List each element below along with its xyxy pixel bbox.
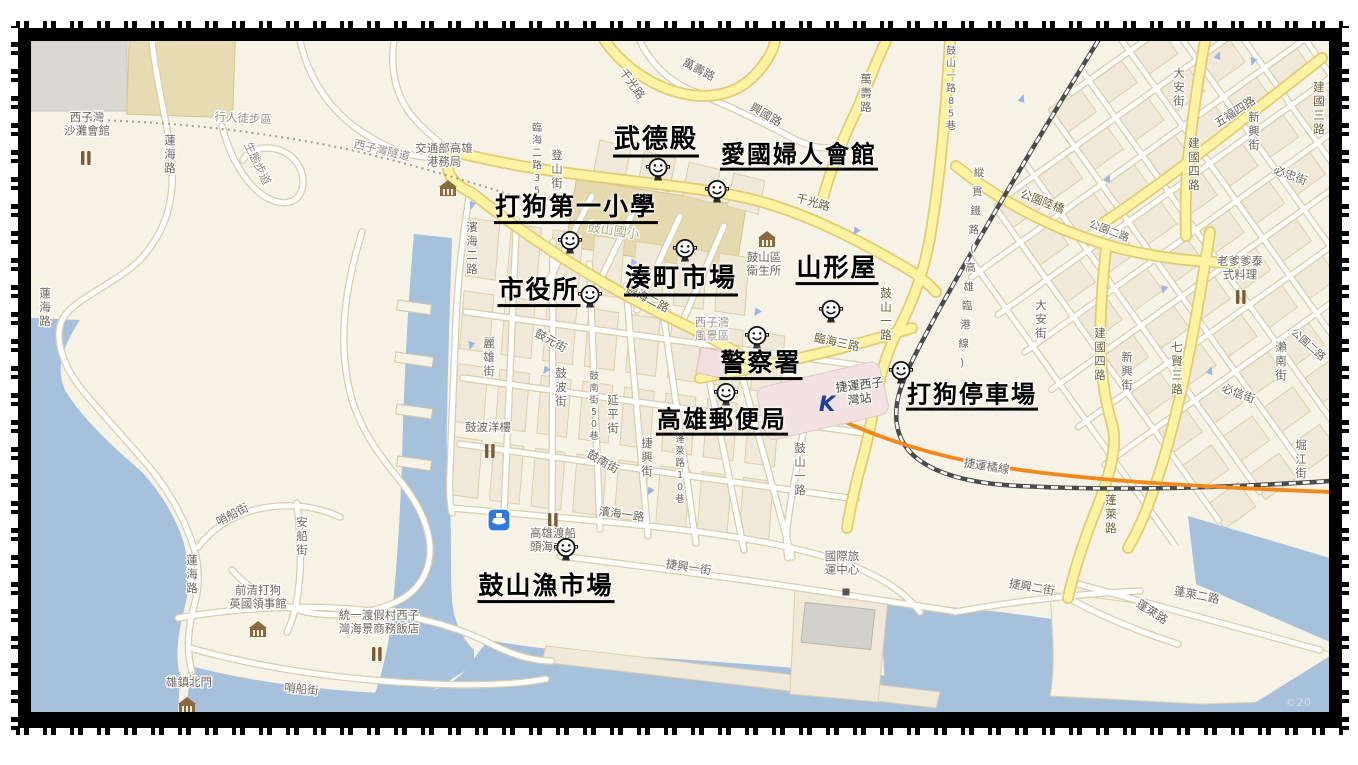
street-label: 延平街 — [607, 393, 619, 435]
street-label: 新興街 — [1248, 110, 1260, 152]
poi-label: 國際旅 — [825, 549, 860, 563]
poi-label: 西子灣 — [695, 315, 730, 329]
map-annotation: 打狗停車場 — [906, 383, 1038, 411]
map-annotation: 鼓山漁市場 — [477, 573, 614, 603]
poi-label: 英國領事館 — [229, 597, 287, 611]
poi-label: 鼓山區 — [747, 250, 782, 264]
map-annotation: 武德殿 — [613, 127, 699, 158]
street-label: 濱海二路 — [466, 220, 478, 276]
street-label: 鼓山一路 — [880, 286, 892, 342]
street-label: 建國四路 — [1094, 326, 1106, 382]
poi-label: 風景區 — [695, 329, 730, 343]
poi-label: 運中心 — [825, 563, 860, 577]
street-label: 大安街 — [1173, 66, 1185, 108]
map-copyright: ©20 — [1285, 696, 1312, 709]
street-label: 堀江街 — [1295, 438, 1307, 480]
frame-tick-left — [11, 26, 18, 730]
map-annotation: 打狗第一小學 — [494, 194, 658, 224]
street-label: 麗雄街 — [483, 336, 495, 378]
poi-label: 式料理 — [1223, 268, 1258, 282]
map-annotation: 高雄郵便局 — [656, 408, 788, 436]
street-label: 新興街 — [1121, 350, 1133, 392]
poi-label: 老爹爹泰 — [1217, 254, 1263, 268]
street-label: 鼓波街 — [555, 366, 567, 408]
poi-label: 交通部高雄 — [415, 141, 473, 155]
poi-label: 前清打狗 — [235, 583, 281, 597]
mrt-k-logo: K — [819, 392, 837, 416]
ferry-icon — [488, 509, 510, 531]
street-label: 建國四路 — [1188, 136, 1200, 192]
poi-label: 衛生所 — [747, 264, 782, 278]
map-canvas[interactable]: K萬壽路萬壽路千光路興國路千光路臨海二路35巷登山街濱海二路臨海二路臨海三路鼓山… — [31, 41, 1329, 712]
decorative-frame: K萬壽路萬壽路千光路興國路千光路臨海二路35巷登山街濱海二路臨海二路臨海三路鼓山… — [18, 28, 1342, 728]
poi-square-icon — [843, 589, 850, 596]
street-label: 大安街 — [1035, 298, 1047, 340]
poi-label: 西子灣 — [70, 110, 105, 124]
street-label: 瀨南街 — [1275, 340, 1287, 382]
street-label: 蓮海路 — [186, 553, 198, 595]
poi-label: 港務局 — [427, 155, 462, 169]
slide-background: K萬壽路萬壽路千光路興國路千光路臨海二路35巷登山街濱海二路臨海二路臨海三路鼓山… — [0, 0, 1358, 765]
street-label: 蓮海路 — [39, 286, 51, 328]
street-label: 捷興街 — [641, 436, 653, 478]
street-label: 蓬萊路 — [1105, 493, 1117, 535]
poi-label: 統一渡假村西子 — [339, 608, 420, 622]
street-label: 蓮海路 — [164, 133, 176, 175]
street-label: 安船街 — [296, 515, 308, 557]
street-label: 萬壽路 — [860, 72, 872, 114]
frame-tick-top — [16, 21, 1344, 28]
map-annotation: 愛國婦人會館 — [720, 143, 878, 171]
map-annotation: 山形屋 — [795, 255, 878, 285]
poi-label: 沙灘會館 — [64, 124, 110, 138]
street-label: 建國三路 — [1313, 80, 1325, 136]
frame-tick-right — [1342, 26, 1349, 730]
frame-tick-bottom — [16, 728, 1344, 735]
poi-label: 灣海景商務飯店 — [339, 622, 420, 636]
poi-label: 雄鎮北門 — [166, 675, 212, 689]
poi-label: 高雄渡船 — [530, 526, 576, 540]
svg-text:K: K — [819, 392, 837, 416]
poi-label: 鼓波洋樓 — [465, 420, 511, 434]
poi-label: 灣站 — [847, 391, 873, 408]
map-annotation: 市役所 — [497, 277, 580, 307]
street-label: 七賢三路 — [1171, 340, 1183, 396]
map-annotation: 警察署 — [719, 350, 802, 380]
street-label: 登山街 — [551, 148, 563, 190]
street-label: 鼓山一路 — [794, 441, 806, 497]
map-annotation: 湊町市場 — [624, 266, 738, 297]
